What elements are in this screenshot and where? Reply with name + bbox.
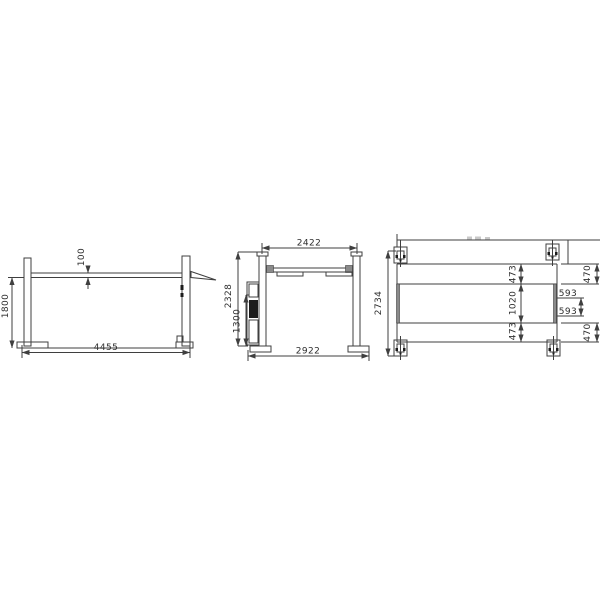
front-left-column [259,256,266,346]
power-unit-lower-panel [249,320,258,343]
power-unit-motor [249,300,258,318]
dim-label-outer-width: 2922 [296,347,321,357]
dim-label-edge-offset-front: 470 [583,265,593,283]
lift-drawing-svg: 1800 100 4455 2422 [0,0,600,600]
ramp-wedge [191,272,216,281]
lock-mark [181,293,184,297]
dim-label-runway-width-rear: 473 [509,322,519,340]
clipped-dim-text-remnant [467,237,490,240]
right-carriage-block [346,266,353,273]
plan-view: 2734 473 1020 473 470 470 593 593 [374,234,600,360]
dim-label-overall-length: 4455 [94,343,119,353]
cross-beam [266,268,353,272]
dim-label-inner-width: 2422 [297,239,322,249]
side-right-column [182,256,190,346]
dim-label-edge-offset-rear: 470 [583,323,593,341]
right-crossbeam-edge [554,284,557,323]
left-carriage-block [267,266,274,273]
dim-label-runway-thickness: 100 [77,248,87,266]
column-section-top-left [394,240,407,267]
technical-drawing-canvas: 1800 100 4455 2422 [0,0,600,600]
left-crossbeam-edge [397,284,400,323]
dim-label-overall-depth: 2734 [374,291,384,316]
front-right-column [353,256,360,346]
dim-label-center-offset-lower: 593 [559,307,577,317]
dim-label-lift-height: 1800 [1,294,11,319]
column-section-bottom-right [547,336,560,360]
front-left-base-plate [250,346,271,352]
dim-label-runway-gap: 1020 [509,291,519,316]
side-view: 1800 100 4455 [1,248,216,358]
dim-label-column-height: 2328 [224,284,234,309]
dim-label-center-offset-upper: 593 [559,289,577,299]
lock-mark [181,285,184,290]
front-right-base-plate [348,346,369,352]
side-left-column [24,258,31,346]
dim-label-power-unit-height: 1300 [233,309,243,334]
dim-label-runway-width-front: 473 [509,265,519,283]
power-unit-top-panel [249,284,258,297]
runway-pad-left [277,272,303,276]
column-section-top-right [546,240,559,266]
front-view: 2422 2328 1300 2922 [224,239,369,362]
